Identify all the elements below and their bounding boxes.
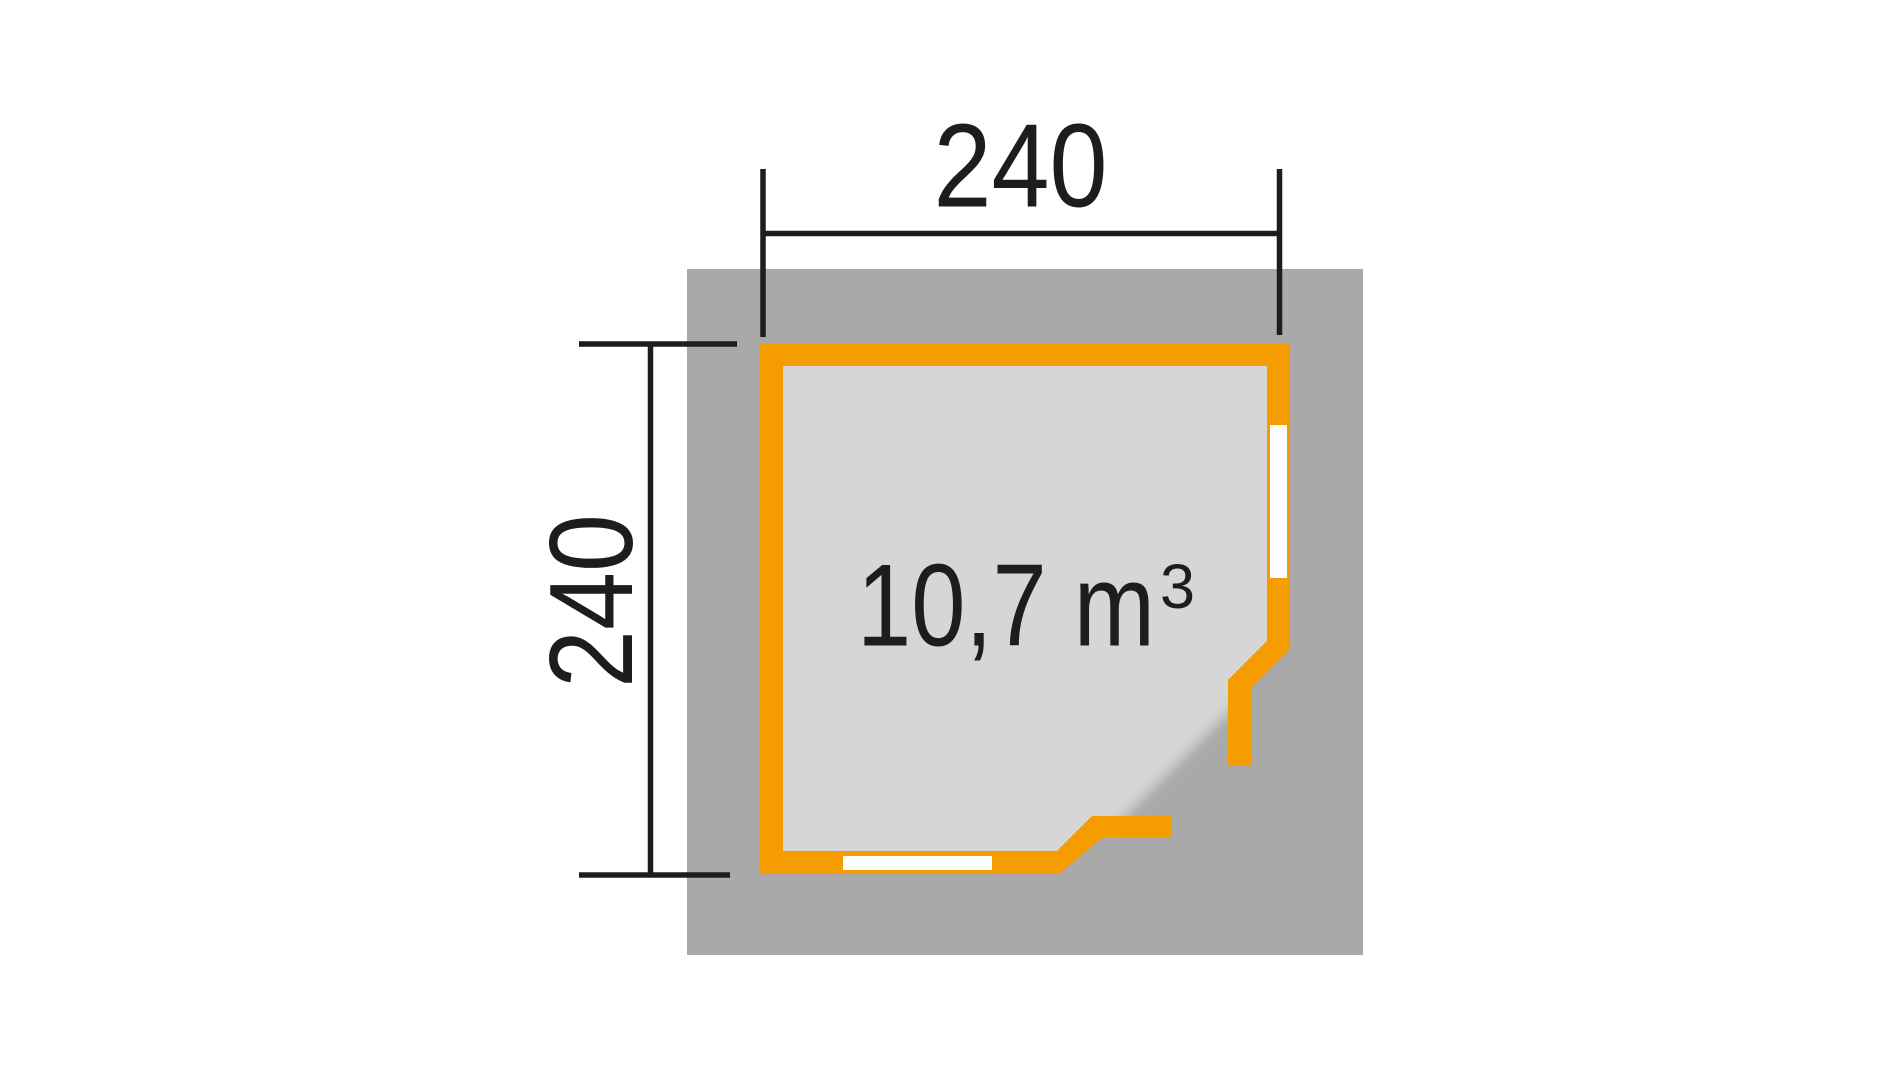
svg-text:10,7 m: 10,7 m [857, 540, 1155, 671]
svg-text:240: 240 [934, 100, 1108, 233]
svg-text:3: 3 [1160, 552, 1195, 622]
svg-text:240: 240 [525, 514, 658, 688]
